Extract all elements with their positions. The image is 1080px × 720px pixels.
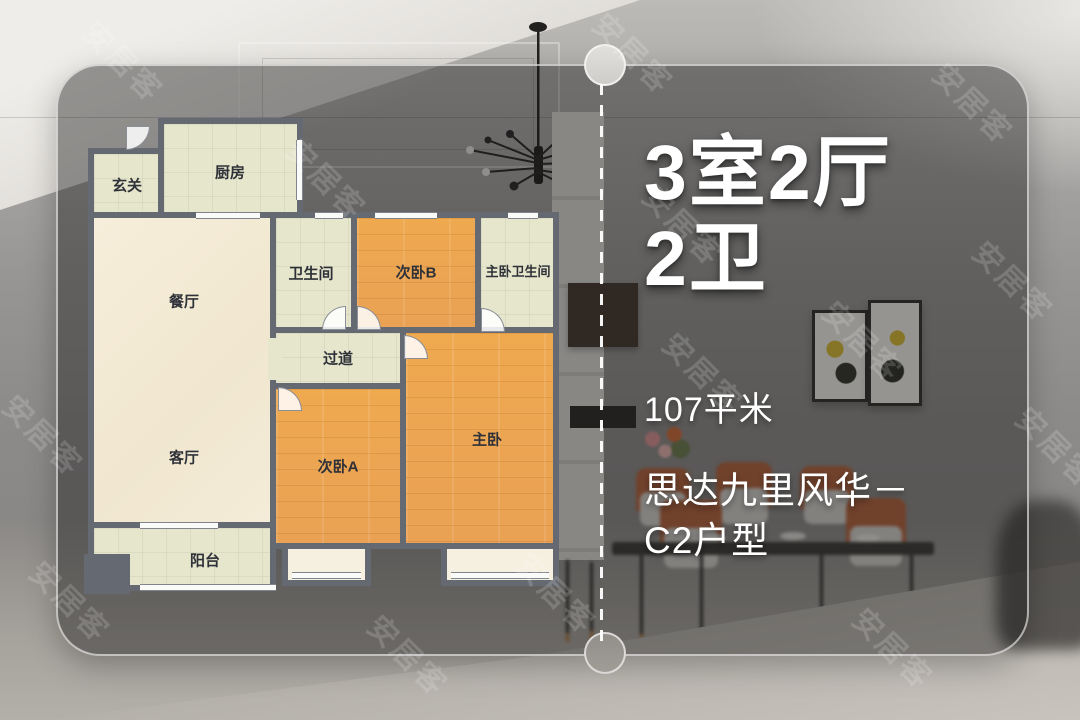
project-name-line2: C2户型 <box>644 516 910 566</box>
card-notch-top <box>584 44 626 86</box>
layout-title: 3室2厅 2卫 <box>644 130 892 302</box>
dashed-divider <box>600 84 603 644</box>
room-dining-living <box>88 212 276 528</box>
kitchen-window <box>296 140 303 200</box>
layout-title-line1: 3室2厅 <box>644 130 892 216</box>
bay-master-window <box>451 572 549 579</box>
room-label-hallway: 过道 <box>323 348 353 369</box>
room-label-dining: 餐厅 <box>169 291 199 312</box>
room-label-bedroom-a: 次卧A <box>318 456 359 477</box>
hallway-opening <box>268 338 282 380</box>
room-label-master-bedroom: 主卧 <box>472 429 502 450</box>
room-label-entry: 玄关 <box>112 175 142 196</box>
balcony-step-wall <box>84 554 130 594</box>
project-name-line1: 思达九里风华－ <box>644 466 910 516</box>
room-label-master-bathroom: 主卧卫生间 <box>485 264 551 280</box>
balcony-sliding-door <box>140 522 218 529</box>
bedroom-b-window <box>375 212 437 219</box>
layout-title-line2: 2卫 <box>644 216 892 302</box>
room-label-balcony: 阳台 <box>190 550 220 571</box>
card-notch-bottom <box>584 632 626 674</box>
master-bathroom-window <box>508 212 538 219</box>
bay-window-master <box>441 543 559 586</box>
room-label-bedroom-b: 次卧B <box>396 262 437 283</box>
project-name: 思达九里风华－ C2户型 <box>644 466 910 567</box>
room-label-living: 客厅 <box>169 447 199 468</box>
bay-window-bedroom-a <box>282 543 371 586</box>
area-text: 107平米 <box>644 382 774 431</box>
room-label-kitchen: 厨房 <box>215 162 245 183</box>
bathroom-window <box>315 212 343 219</box>
bay-a-window <box>292 572 361 579</box>
balcony-window <box>140 584 276 591</box>
room-label-bathroom: 卫生间 <box>288 263 333 284</box>
kitchen-door-opening <box>196 212 260 219</box>
